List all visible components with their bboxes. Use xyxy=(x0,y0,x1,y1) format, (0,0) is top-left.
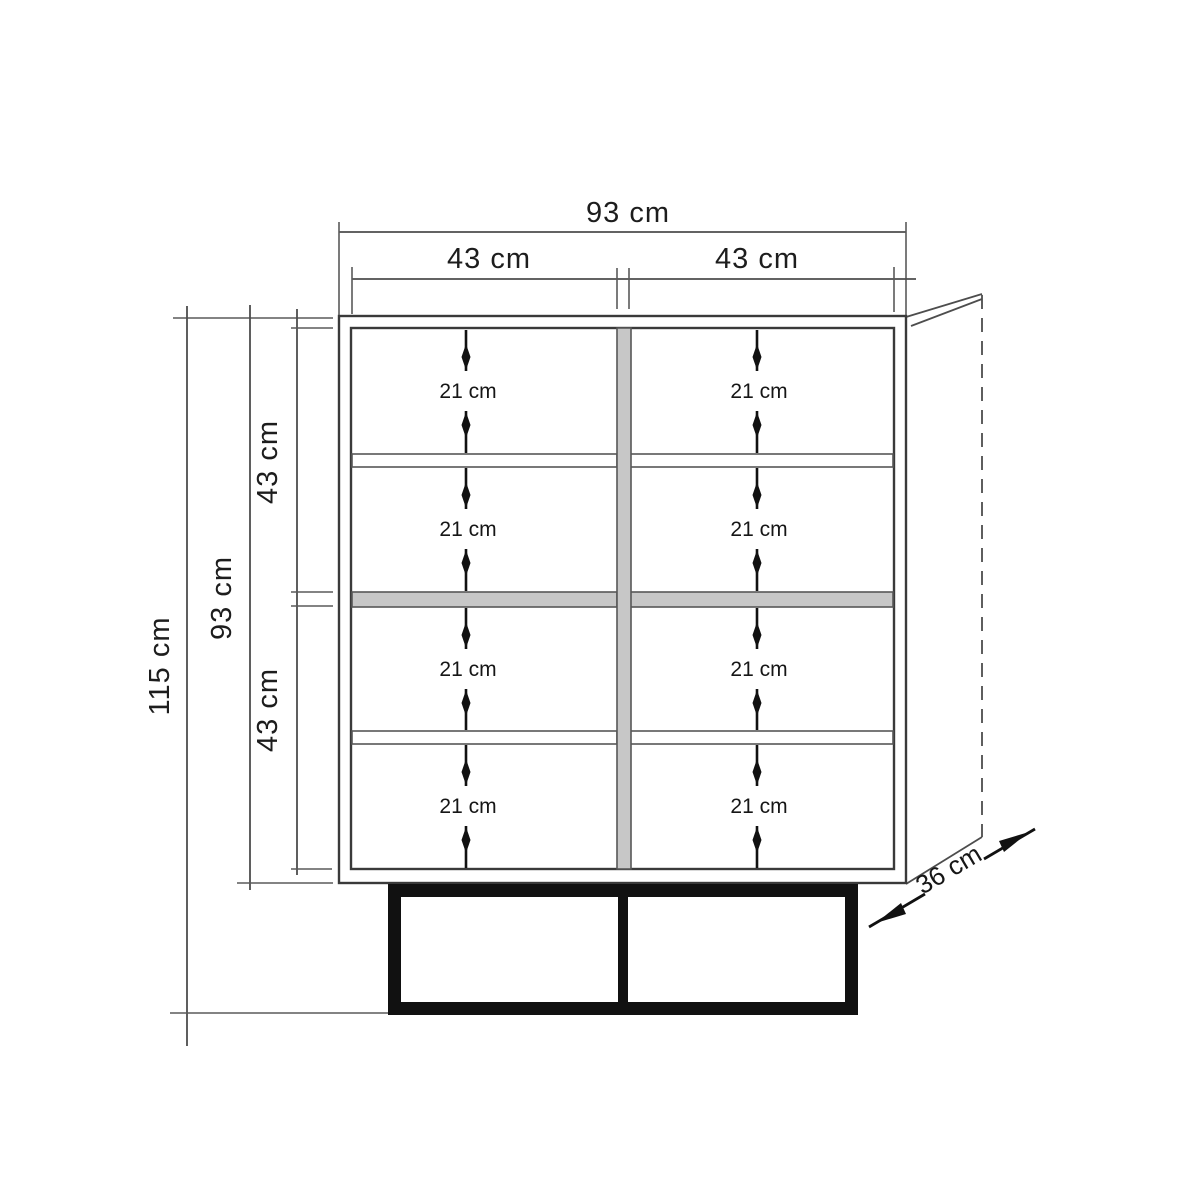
down-arrowhead xyxy=(462,344,471,370)
depth-arrowhead-lower xyxy=(876,903,906,923)
compartment-annotation-right-2: 21 cm xyxy=(730,468,787,591)
down-arrowhead xyxy=(753,759,762,785)
down-arrowhead xyxy=(462,759,471,785)
shelf-spacing-label: 21 cm xyxy=(439,380,496,403)
shelf-spacing-label: 21 cm xyxy=(730,518,787,541)
overall-width-label: 93 cm xyxy=(586,197,670,229)
total-height-label: 115 cm xyxy=(144,617,176,716)
shelf-spacing-label: 21 cm xyxy=(439,518,496,541)
side-depth-projection xyxy=(906,294,982,884)
down-arrowhead xyxy=(462,622,471,648)
compartment-annotation-left-3: 21 cm xyxy=(439,608,496,730)
shelf-spacing-label: 21 cm xyxy=(730,380,787,403)
upper-section-label: 43 cm xyxy=(252,420,284,504)
left-door-width-label: 43 cm xyxy=(447,243,531,275)
right-door-width-label: 43 cm xyxy=(715,243,799,275)
shelf-spacing-label: 21 cm xyxy=(730,658,787,681)
down-arrowhead xyxy=(753,622,762,648)
down-arrowhead xyxy=(753,482,762,508)
technical-drawing-canvas: 93 cm 43 cm 43 cm 115 cm 93 cm 43 cm 43 … xyxy=(0,0,1200,1200)
down-arrowhead xyxy=(753,344,762,370)
compartment-annotation-left-4: 21 cm xyxy=(439,745,496,868)
center-divider-panel xyxy=(617,328,631,869)
body-height-label: 93 cm xyxy=(206,556,238,640)
compartment-annotation-right-4: 21 cm xyxy=(730,745,787,868)
depth-label: 36 cm xyxy=(910,838,986,900)
compartment-annotation-left-2: 21 cm xyxy=(439,468,496,591)
depth-arrowhead-upper xyxy=(999,832,1029,852)
shelf-spacing-label: 21 cm xyxy=(730,795,787,818)
top-width-dimensions: 93 cm 43 cm 43 cm xyxy=(339,197,916,316)
base-frame xyxy=(388,884,858,1015)
compartment-annotation-left-1: 21 cm xyxy=(439,330,496,453)
cabinet-front-view xyxy=(339,316,906,883)
compartment-annotation-right-3: 21 cm xyxy=(730,608,787,730)
base-right-opening xyxy=(628,897,845,1002)
shelf-right-middle-fixed xyxy=(630,592,893,607)
lower-section-label: 43 cm xyxy=(252,668,284,752)
shelf-spacing-label: 21 cm xyxy=(439,658,496,681)
shelf-spacing-label: 21 cm xyxy=(439,795,496,818)
shelf-left-lower xyxy=(352,731,617,744)
shelf-left-upper xyxy=(352,454,617,467)
compartment-annotation-right-1: 21 cm xyxy=(730,330,787,453)
down-arrowhead xyxy=(462,482,471,508)
base-left-opening xyxy=(401,897,618,1002)
shelf-right-lower xyxy=(630,731,893,744)
cabinet-dimension-drawing: 93 cm 43 cm 43 cm 115 cm 93 cm 43 cm 43 … xyxy=(0,0,1200,1200)
shelf-left-middle-fixed xyxy=(352,592,617,607)
left-height-dimensions: 115 cm 93 cm 43 cm 43 cm xyxy=(144,305,389,1046)
shelf-right-upper xyxy=(630,454,893,467)
